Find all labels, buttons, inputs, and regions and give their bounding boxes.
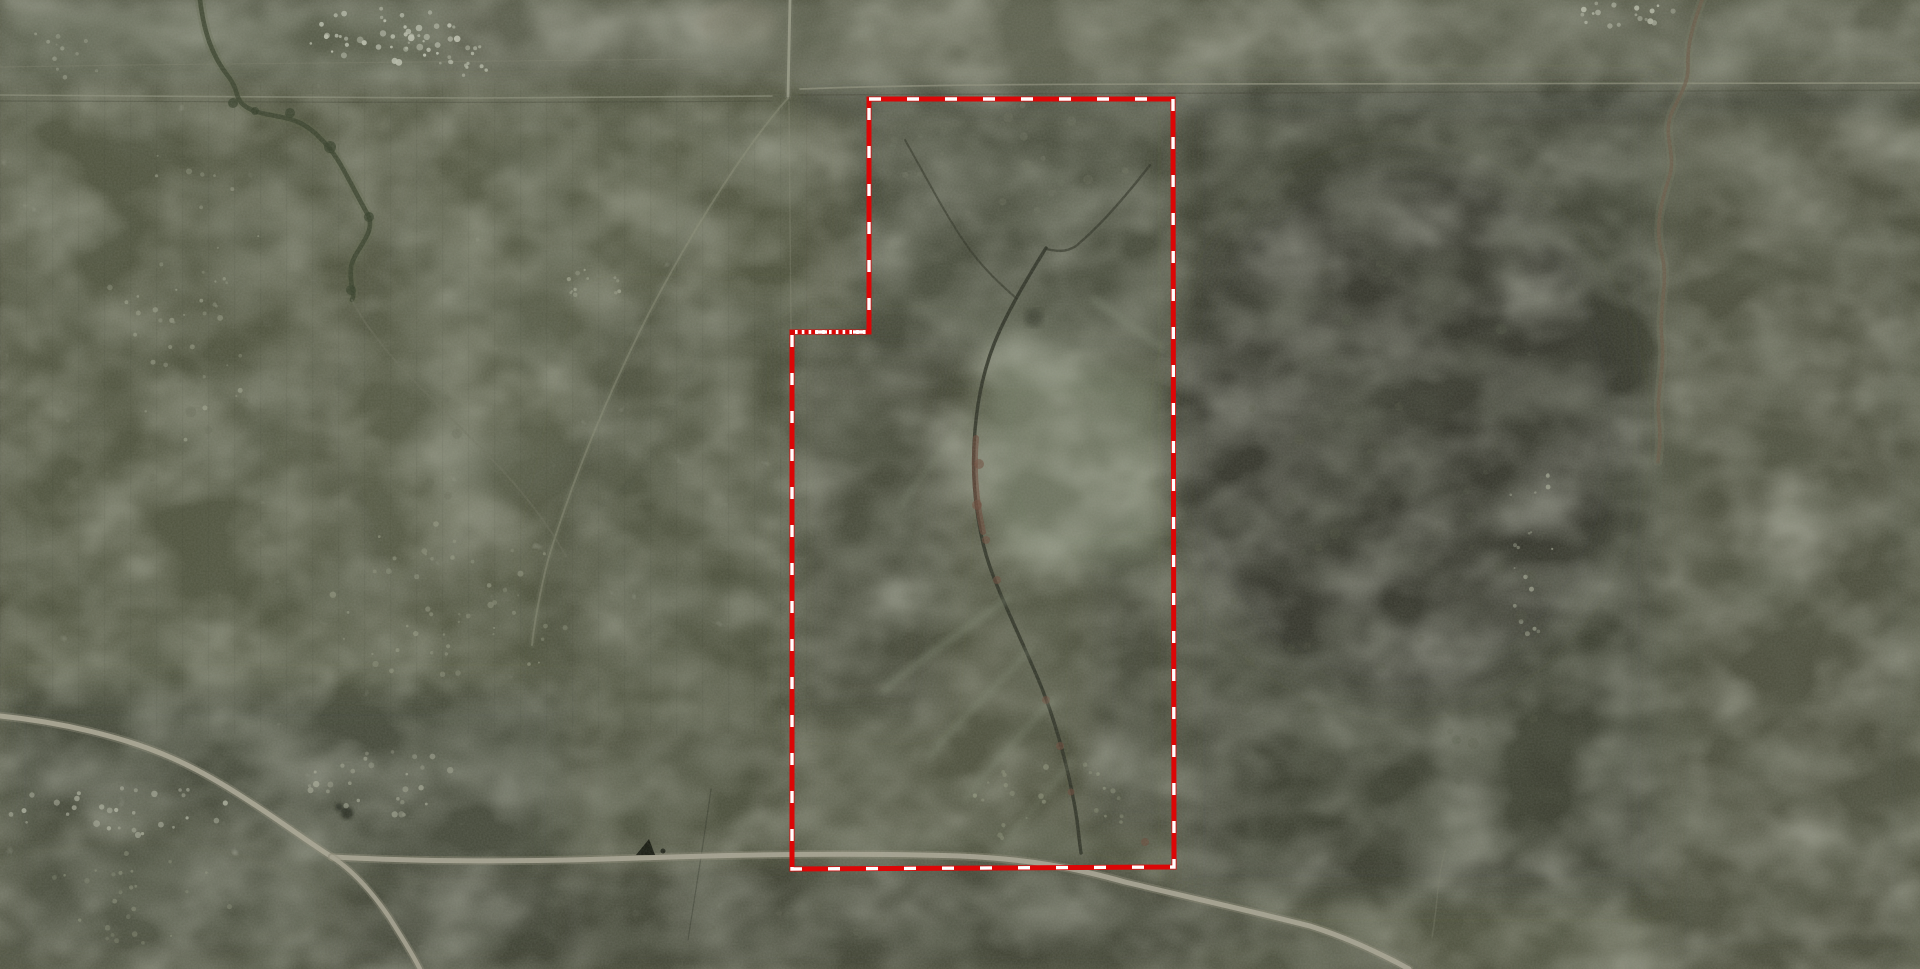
satellite-map-viewport[interactable] (0, 0, 1920, 969)
satellite-imagery-canvas[interactable] (0, 0, 1920, 969)
image-grain-overlay (0, 0, 1920, 969)
